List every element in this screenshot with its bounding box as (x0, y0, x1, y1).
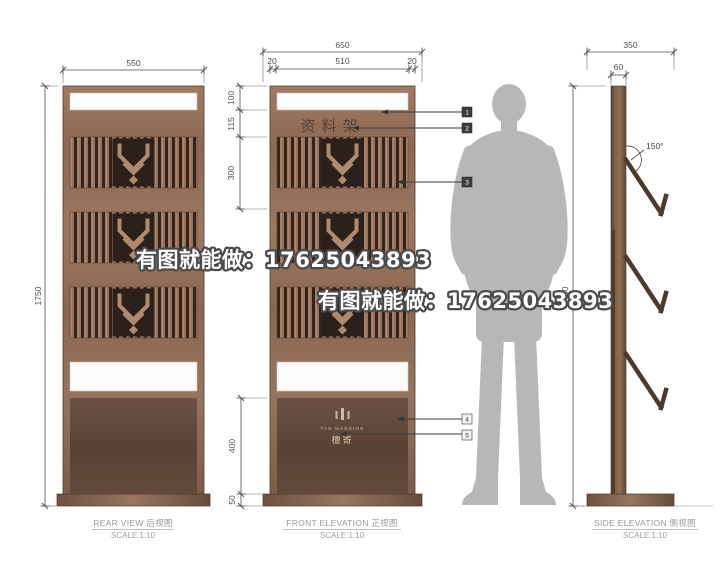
dim-rear-height: 1750 (33, 83, 58, 509)
dim-front-vertical-upper: 100 115 300 (226, 83, 267, 212)
front-view-title: FRONT ELEVATION 正视图 (286, 518, 398, 528)
front-view-scale: SCALE:1:10 (320, 531, 365, 540)
dim-front-margin-left: 20 (267, 56, 277, 66)
drawing-canvas: 资料架 TAN MANSION 檀寄 150° (0, 0, 720, 561)
dim-side-total-width: 350 (584, 40, 677, 70)
rear-view-title: REAR VIEW 后视图 (93, 518, 172, 528)
rear-view-scale: SCALE:1:10 (111, 531, 156, 540)
dim-rear-height-value: 1750 (33, 286, 43, 305)
dim-side-post-width: 60 (608, 62, 629, 85)
watermark-text-1: 有图就能做：17625043893 (136, 248, 431, 272)
svg-text:5: 5 (465, 433, 469, 440)
rear-base-plinth (57, 494, 210, 506)
side-post-inner-strip (611, 230, 615, 494)
svg-text:3: 3 (465, 180, 469, 187)
side-view-title: SIDE ELEVATION 侧视图 (594, 518, 696, 528)
front-base-plinth (263, 494, 422, 506)
dim-seg-400: 400 (227, 439, 237, 453)
logo-latin-text: TAN MANSION (320, 426, 364, 431)
front-lower-window (277, 362, 408, 391)
dim-front-total-value: 650 (335, 40, 349, 50)
rear-top-window (70, 93, 197, 110)
side-shelf-brackets (626, 160, 666, 408)
watermark-text-2: 有图就能做：17625043893 (318, 289, 613, 313)
chevron-emblem-icon (113, 139, 155, 187)
svg-text:1: 1 (465, 110, 469, 117)
dim-seg-50: 50 (227, 495, 237, 505)
angle-value: 150° (646, 141, 664, 151)
view-labels: REAR VIEW 后视图 SCALE:1:10 FRONT ELEVATION… (92, 518, 698, 540)
sign-text: 资料架 (300, 118, 363, 135)
dim-seg-115: 115 (226, 117, 236, 131)
rear-bottom-panel (70, 398, 197, 494)
svg-text:2: 2 (465, 126, 469, 133)
dim-side-post-value: 60 (614, 62, 624, 72)
chevron-emblem-icon (322, 139, 364, 187)
dim-front-split-width: 20 510 20 (267, 56, 418, 74)
side-view-scale: SCALE:1:10 (623, 531, 668, 540)
rear-lower-window (70, 362, 197, 391)
dim-front-inner: 510 (335, 56, 349, 66)
dim-rear-width: 550 (60, 58, 207, 83)
dim-side-total-value: 350 (623, 40, 637, 50)
dim-seg-100: 100 (226, 91, 236, 105)
dim-seg-300: 300 (226, 166, 236, 180)
front-top-window (277, 93, 408, 110)
logo-cn-text: 檀寄 (331, 434, 353, 445)
svg-text:4: 4 (465, 417, 469, 424)
chevron-emblem-icon (113, 289, 155, 337)
rear-view-drawing (57, 86, 210, 506)
logo-mark-icon (341, 408, 344, 420)
side-base-plate (587, 494, 674, 506)
dim-front-margin-right: 20 (407, 56, 417, 66)
dim-rear-width-value: 550 (126, 58, 140, 68)
dim-front-vertical-lower: 400 50 (227, 395, 267, 509)
